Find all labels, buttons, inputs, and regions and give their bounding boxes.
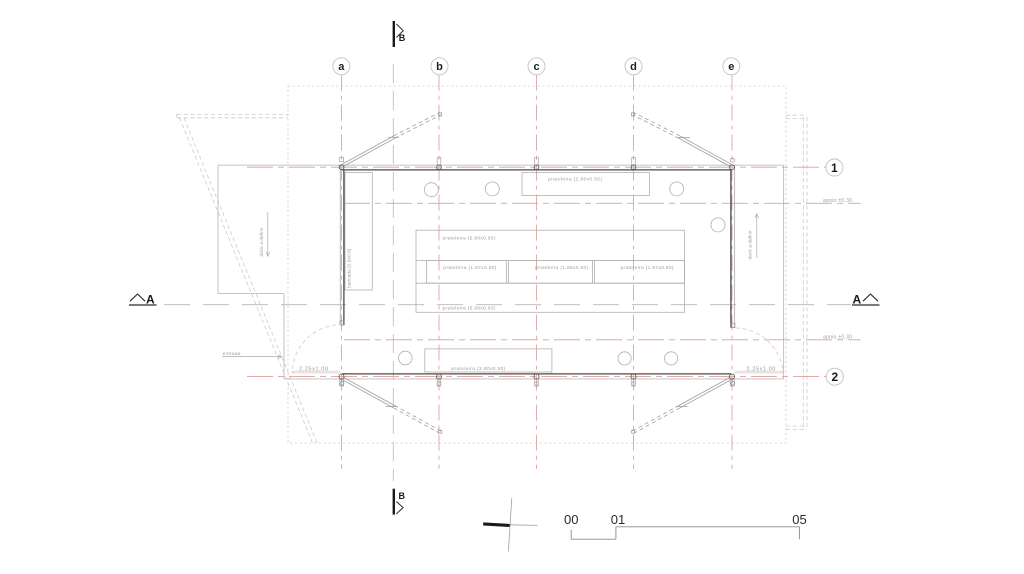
svg-text:2: 2 xyxy=(831,370,838,384)
svg-text:prateleira (1.97x0.50): prateleira (1.97x0.50) xyxy=(621,265,674,271)
svg-text:A: A xyxy=(146,292,155,306)
svg-text:e: e xyxy=(728,61,734,73)
svg-text:2.25x1.00: 2.25x1.00 xyxy=(747,366,776,372)
svg-text:01: 01 xyxy=(611,512,625,527)
svg-text:prateleira (1.97x0.50): prateleira (1.97x0.50) xyxy=(443,265,496,271)
svg-text:2.25x1.00: 2.25x1.00 xyxy=(299,366,328,372)
svg-text:apoio ±0.30: apoio ±0.30 xyxy=(823,334,852,340)
svg-text:B: B xyxy=(399,491,406,501)
svg-text:prateleira (5.90x0.65): prateleira (5.90x0.65) xyxy=(443,306,496,312)
svg-text:bancada (2.6x0.6): bancada (2.6x0.6) xyxy=(347,248,353,288)
svg-text:deck a definir: deck a definir xyxy=(259,227,265,256)
svg-text:b: b xyxy=(436,61,443,73)
svg-text:prateleira (1.85x0.50): prateleira (1.85x0.50) xyxy=(535,265,588,271)
svg-text:d: d xyxy=(630,61,637,73)
svg-text:00: 00 xyxy=(564,512,578,527)
svg-text:prateleira (2.80x0.50): prateleira (2.80x0.50) xyxy=(451,366,505,372)
svg-text:1: 1 xyxy=(831,161,838,175)
svg-text:deck a definir: deck a definir xyxy=(748,230,754,259)
svg-text:A: A xyxy=(853,292,862,306)
svg-text:05: 05 xyxy=(792,512,806,527)
svg-text:B: B xyxy=(399,33,406,43)
svg-text:prateleira (2.80x0.50): prateleira (2.80x0.50) xyxy=(548,176,602,182)
svg-text:a: a xyxy=(338,61,345,73)
svg-text:entrada: entrada xyxy=(223,351,241,357)
svg-text:c: c xyxy=(533,61,539,73)
svg-text:apoio ±0.30: apoio ±0.30 xyxy=(823,198,852,204)
svg-text:prateleira (5.90x0.65): prateleira (5.90x0.65) xyxy=(443,235,496,241)
